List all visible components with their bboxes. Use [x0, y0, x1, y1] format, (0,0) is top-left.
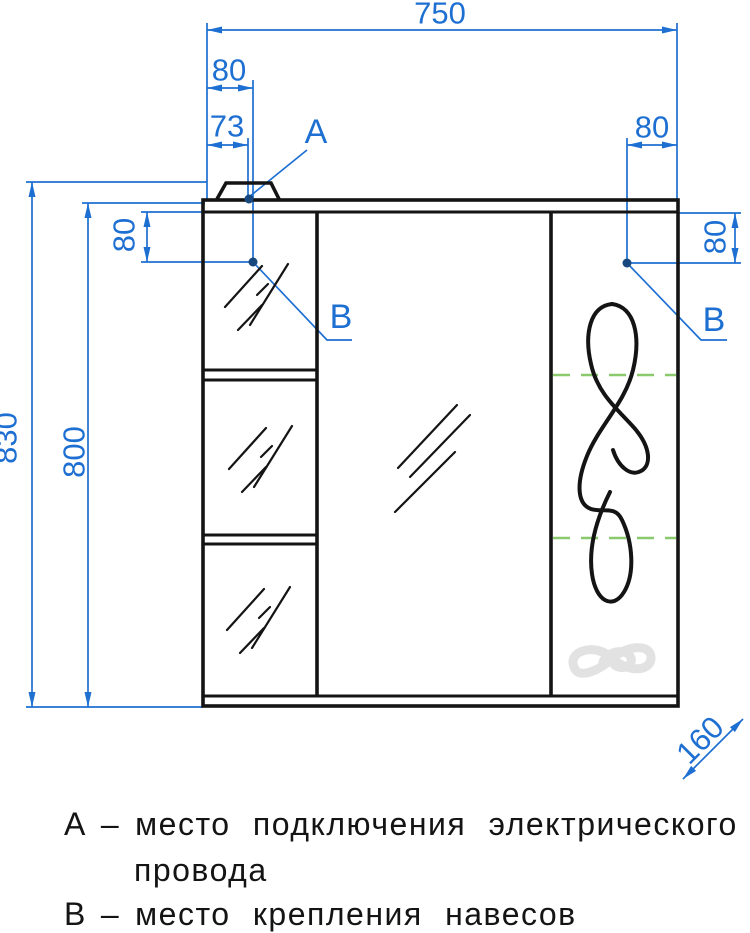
dim-label-830: 830 [0, 412, 22, 464]
legend-text-a-line2: провода [134, 854, 268, 886]
point-label-b-right: B [703, 303, 726, 337]
dim-label-80-left: 80 [109, 218, 140, 252]
dim-label-73: 73 [210, 111, 244, 142]
mirror-panel-middle [203, 380, 317, 535]
legend-text-a-line1: место подключения электрического [135, 808, 738, 840]
point-b-marker-left [249, 258, 258, 267]
leader-lines [249, 150, 727, 340]
point-b-marker-right [623, 259, 632, 268]
mirror-hatch-center [395, 405, 470, 512]
legend-separator-a: – [101, 808, 120, 840]
legend-separator-b: – [101, 898, 120, 930]
mirror-hatch-bottom [227, 587, 290, 653]
dim-label-80-top-right: 80 [635, 112, 669, 143]
dim-label-800: 800 [59, 426, 90, 478]
mirror-panel-bottom [203, 544, 317, 696]
brand-logo [573, 648, 651, 674]
technical-drawing-page: { "colors": { "dimension_blue": "#1e6fd2… [0, 0, 750, 933]
legend-item-b: В – место крепления навесов [64, 898, 577, 930]
legend-item-a-wrap: провода [134, 854, 268, 886]
point-a-marker [245, 195, 254, 204]
legend-key-b: В [64, 898, 87, 930]
dim-label-80-right: 80 [700, 220, 731, 254]
mirror-hatch-middle [229, 426, 292, 492]
legend-text-b-line1: место крепления навесов [135, 898, 577, 930]
point-label-b-left: B [330, 300, 353, 334]
dim-label-overall-width: 750 [414, 0, 466, 29]
mirror-hatch-top [225, 264, 288, 330]
decorative-ribbon [580, 304, 649, 602]
leader-a [249, 150, 307, 197]
legend-item-a: А – место подключения электрического [64, 808, 738, 840]
legend-key-a: А [64, 808, 87, 840]
dim-label-80-top-left: 80 [212, 55, 246, 86]
point-label-a: A [305, 115, 328, 149]
